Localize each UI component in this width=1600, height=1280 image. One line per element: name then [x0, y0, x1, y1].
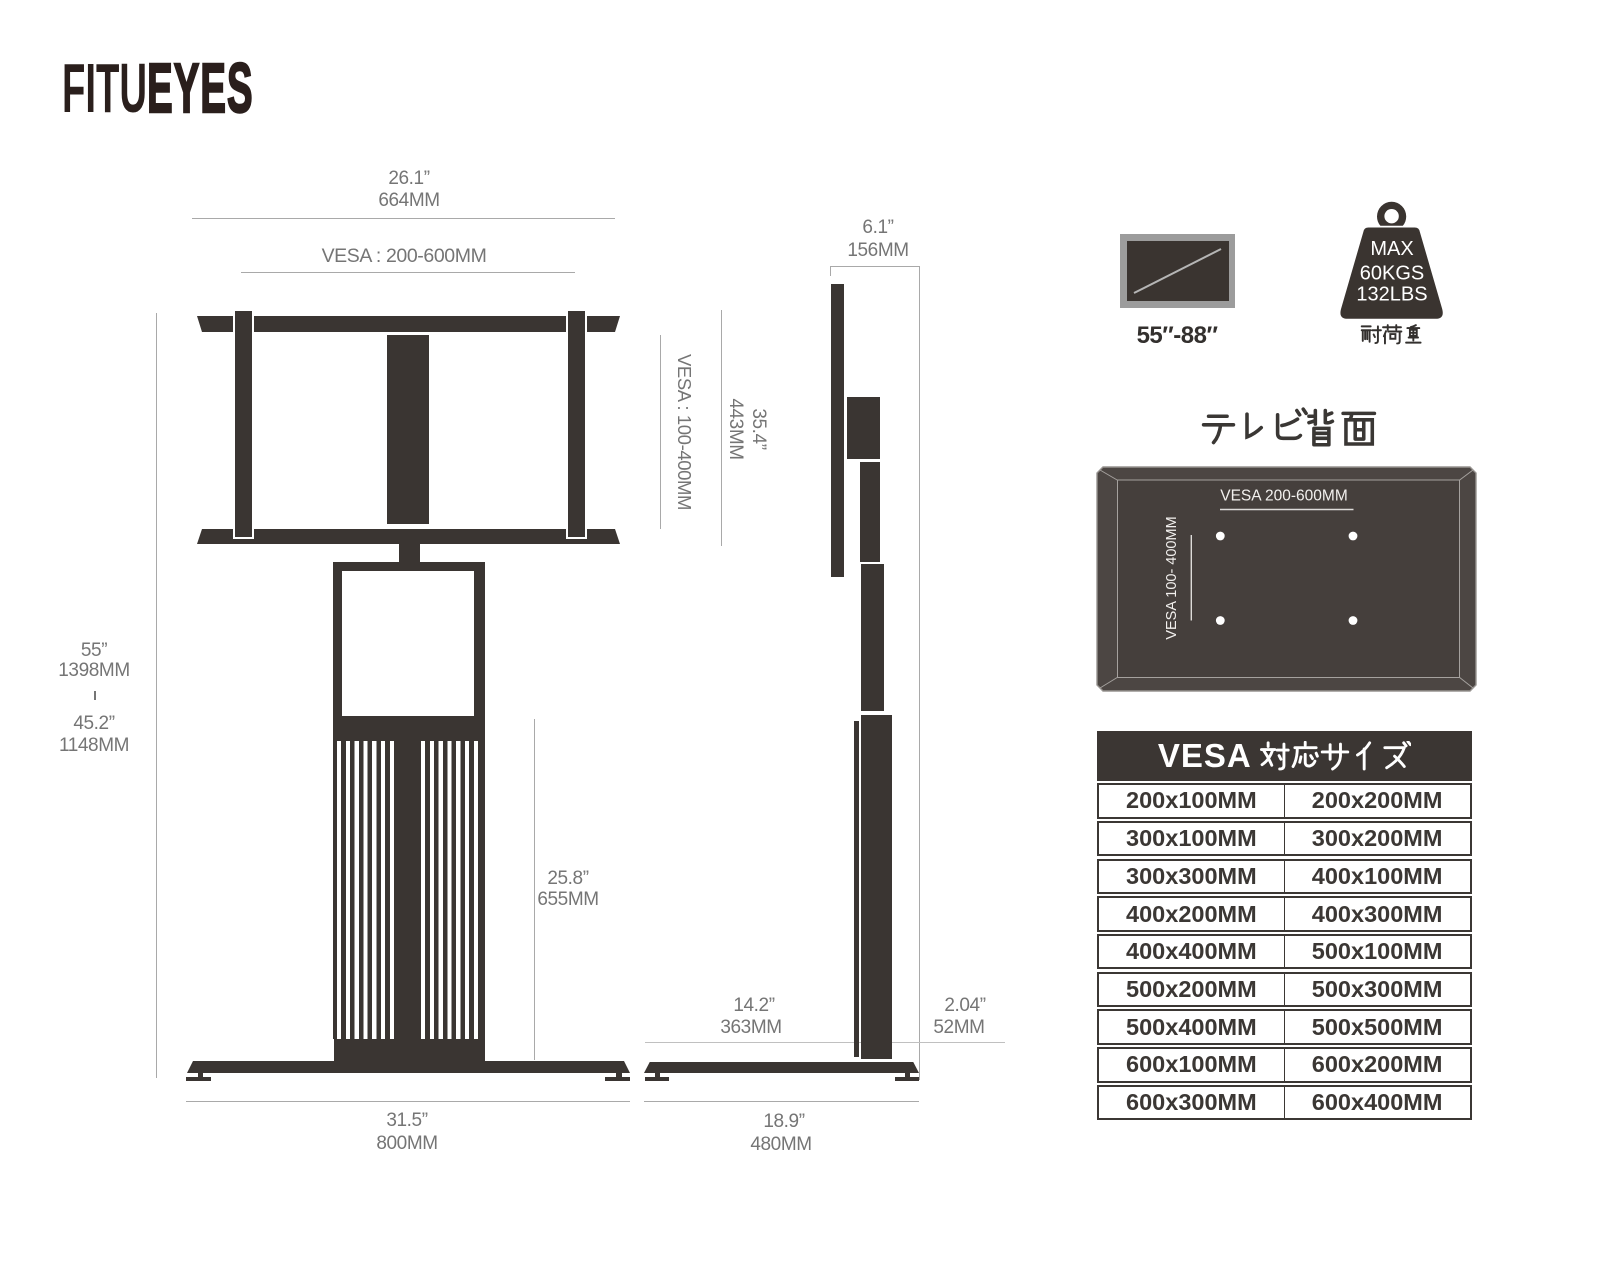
svg-text:VESA 200-600MM: VESA 200-600MM — [1220, 488, 1348, 505]
svg-text:VESA 100- 400MM: VESA 100- 400MM — [1164, 516, 1180, 639]
svg-text:60KGS: 60KGS — [1360, 263, 1424, 285]
svg-text:MAX: MAX — [1370, 238, 1413, 260]
svg-text:132LBS: 132LBS — [1356, 284, 1427, 306]
